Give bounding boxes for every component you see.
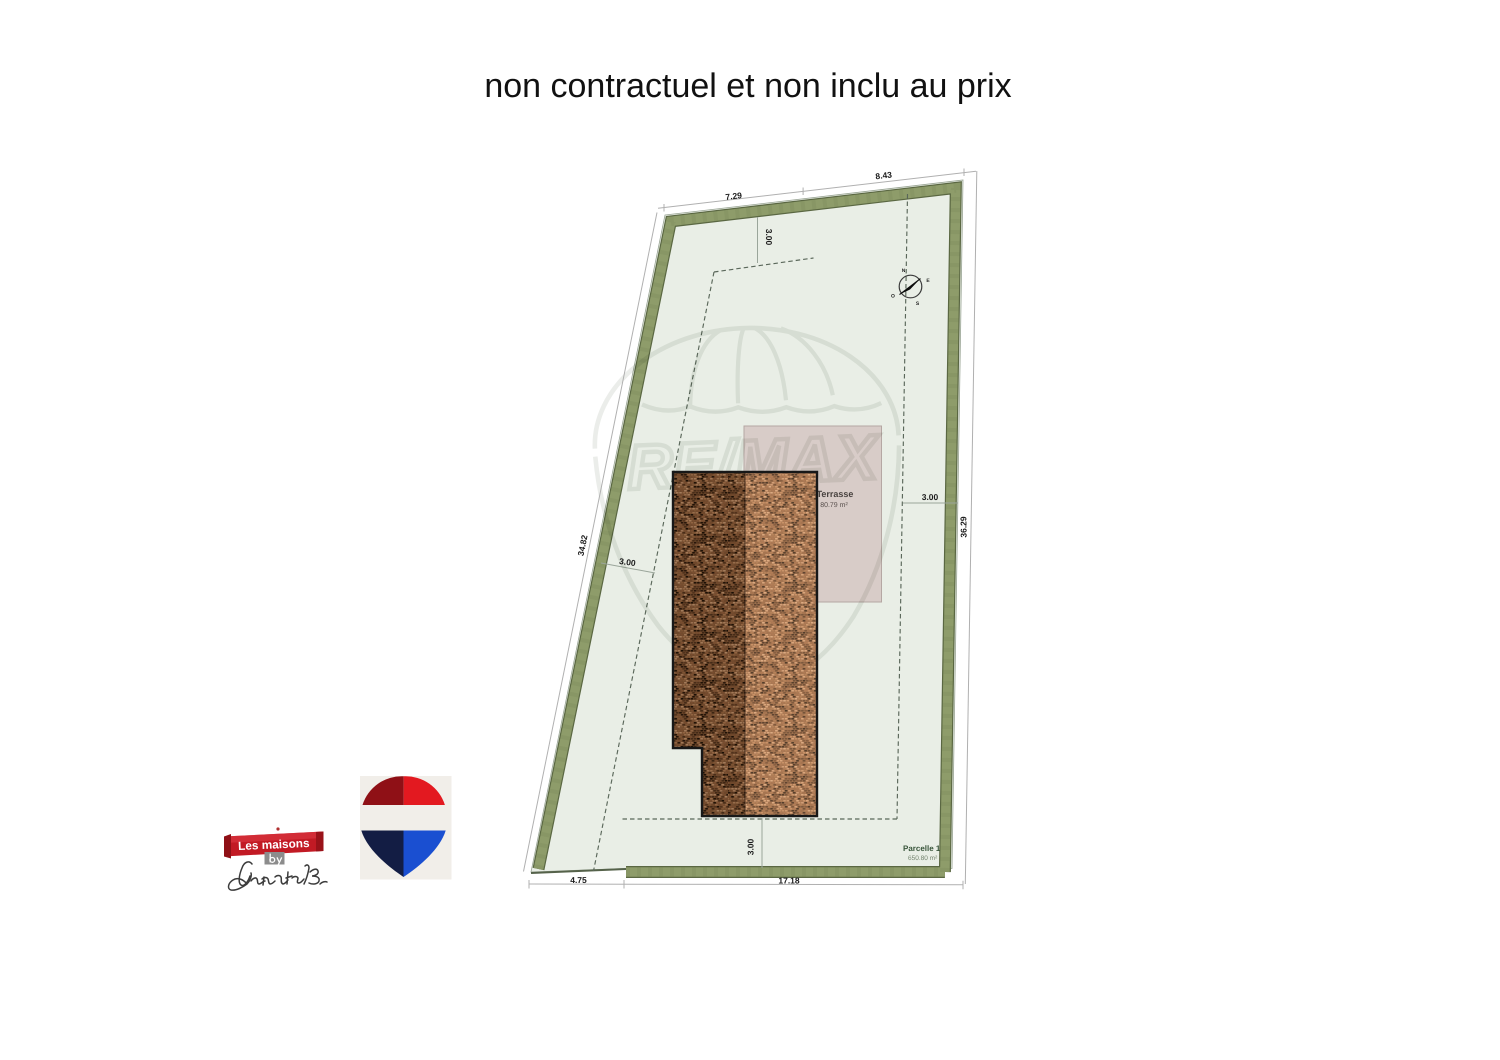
svg-text:17.18: 17.18: [778, 876, 800, 886]
svg-text:8.43: 8.43: [875, 169, 893, 181]
svg-text:non contractuel et non inclu a: non contractuel et non inclu au prix: [484, 67, 1011, 105]
svg-text:650.80 m²: 650.80 m²: [908, 855, 938, 862]
svg-text:36.29: 36.29: [958, 516, 968, 538]
svg-text:3.00: 3.00: [764, 229, 774, 246]
svg-text:4.75: 4.75: [570, 875, 587, 885]
svg-text:N: N: [902, 268, 906, 274]
svg-text:7.29: 7.29: [725, 190, 743, 202]
svg-text:3.00: 3.00: [746, 838, 756, 855]
svg-text:80.79 m²: 80.79 m²: [820, 502, 848, 509]
svg-text:3.00: 3.00: [922, 492, 939, 502]
svg-text:Parcelle 1: Parcelle 1: [903, 844, 941, 853]
svg-text:O: O: [891, 294, 895, 300]
